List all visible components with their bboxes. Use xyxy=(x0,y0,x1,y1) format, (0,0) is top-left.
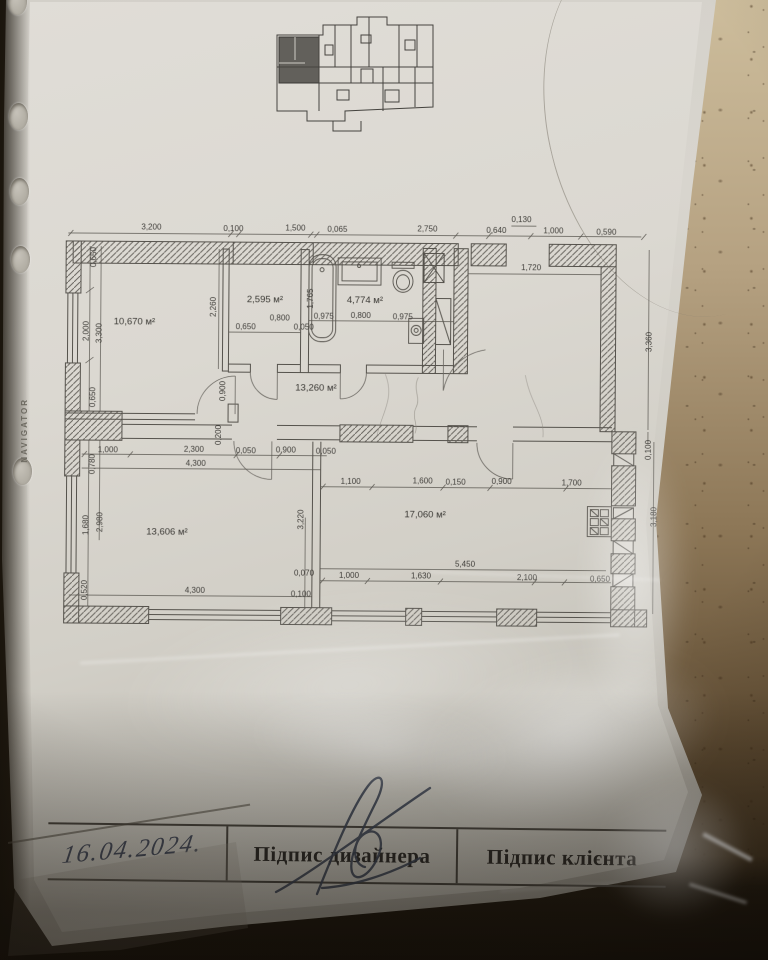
svg-text:1,700: 1,700 xyxy=(562,478,583,487)
svg-text:0,130: 0,130 xyxy=(511,215,532,224)
svg-text:1,100: 1,100 xyxy=(341,477,362,486)
svg-text:0,100: 0,100 xyxy=(291,590,312,599)
svg-text:0,900: 0,900 xyxy=(492,477,513,486)
svg-text:1,000: 1,000 xyxy=(339,571,360,580)
svg-text:0,650: 0,650 xyxy=(590,575,611,584)
svg-text:3,220: 3,220 xyxy=(296,509,305,530)
svg-text:0,640: 0,640 xyxy=(486,226,507,235)
toilet-icon xyxy=(392,262,414,292)
client-signature-cell: Підпис клієнта xyxy=(456,829,667,886)
photo-scene: { "photo": { "sleeve_brand": "NAVIGATOR"… xyxy=(0,0,768,960)
svg-text:0,800: 0,800 xyxy=(270,313,291,322)
svg-text:4,300: 4,300 xyxy=(185,586,206,595)
svg-text:0,100: 0,100 xyxy=(223,224,244,233)
svg-text:0,050: 0,050 xyxy=(316,447,337,456)
svg-text:1,720: 1,720 xyxy=(521,263,542,272)
svg-text:3,300: 3,300 xyxy=(95,323,104,344)
binder-hole xyxy=(11,246,30,273)
svg-text:1,680: 1,680 xyxy=(81,514,90,535)
room-label-bathroom: 4,774 м² xyxy=(347,295,383,306)
svg-text:0,800: 0,800 xyxy=(351,311,372,320)
svg-text:0,900: 0,900 xyxy=(218,380,227,401)
svg-text:1,765: 1,765 xyxy=(306,288,315,309)
floor-plan: 3,200 0,100 1,500 0,065 2,750 0,640 0,13… xyxy=(54,210,672,639)
svg-text:2,100: 2,100 xyxy=(517,573,538,582)
svg-text:3,180: 3,180 xyxy=(649,506,658,527)
svg-text:0,650: 0,650 xyxy=(236,322,257,331)
svg-text:3,200: 3,200 xyxy=(141,222,162,231)
svg-text:5,450: 5,450 xyxy=(455,560,476,569)
svg-text:1,000: 1,000 xyxy=(543,226,564,235)
svg-text:0,050: 0,050 xyxy=(236,446,257,455)
dimension-labels: 3,200 0,100 1,500 0,065 2,750 0,640 0,13… xyxy=(80,212,661,604)
room-label-bedroom2: 13,606 м² xyxy=(146,526,187,537)
svg-text:2,300: 2,300 xyxy=(184,445,205,454)
svg-text:0,650: 0,650 xyxy=(89,247,98,268)
highlighted-apartment xyxy=(279,37,319,83)
svg-text:0,520: 0,520 xyxy=(80,579,89,600)
svg-text:1,500: 1,500 xyxy=(285,223,306,232)
svg-text:0,050: 0,050 xyxy=(294,323,315,332)
electrical-panel-icon xyxy=(587,507,611,537)
svg-text:1,000: 1,000 xyxy=(98,445,119,454)
svg-text:2,260: 2,260 xyxy=(209,296,218,317)
room-label-bedroom1: 10,670 м² xyxy=(114,316,155,327)
room-label-wardrobe: 2,595 м² xyxy=(247,294,283,305)
svg-text:0,900: 0,900 xyxy=(276,445,297,454)
svg-text:0,975: 0,975 xyxy=(393,312,414,321)
svg-text:4,300: 4,300 xyxy=(186,459,207,468)
paper-brand: NAVIGATOR xyxy=(20,398,29,463)
svg-text:0,200: 0,200 xyxy=(214,424,223,445)
svg-text:1,600: 1,600 xyxy=(413,476,434,485)
svg-text:2,000: 2,000 xyxy=(82,320,91,341)
svg-text:2,980: 2,980 xyxy=(95,512,104,533)
svg-text:0,070: 0,070 xyxy=(294,569,315,578)
binder-hole xyxy=(10,178,29,205)
sink-icon xyxy=(338,258,381,285)
svg-text:2,750: 2,750 xyxy=(417,224,438,233)
svg-text:0,065: 0,065 xyxy=(327,225,348,234)
svg-text:0,590: 0,590 xyxy=(596,228,617,237)
door-arcs xyxy=(197,348,544,481)
svg-text:0,975: 0,975 xyxy=(314,312,335,321)
dimension-lines xyxy=(66,223,656,614)
svg-text:3,360: 3,360 xyxy=(645,331,654,352)
svg-text:1,630: 1,630 xyxy=(411,571,432,580)
svg-text:0,780: 0,780 xyxy=(88,454,97,475)
svg-text:0,100: 0,100 xyxy=(644,439,653,460)
key-plan xyxy=(265,5,450,137)
room-label-hall: 13,260 м² xyxy=(295,383,336,394)
svg-text:0,650: 0,650 xyxy=(88,387,97,408)
designer-signature xyxy=(262,762,447,910)
svg-text:0,150: 0,150 xyxy=(446,478,467,487)
washing-machine-icon xyxy=(409,318,424,343)
room-label-living: 17,060 м² xyxy=(404,509,445,520)
binder-hole xyxy=(9,103,28,130)
room-area-labels: 10,670 м² 2,595 м² 4,774 м² 13,260 м² 13… xyxy=(112,293,447,539)
